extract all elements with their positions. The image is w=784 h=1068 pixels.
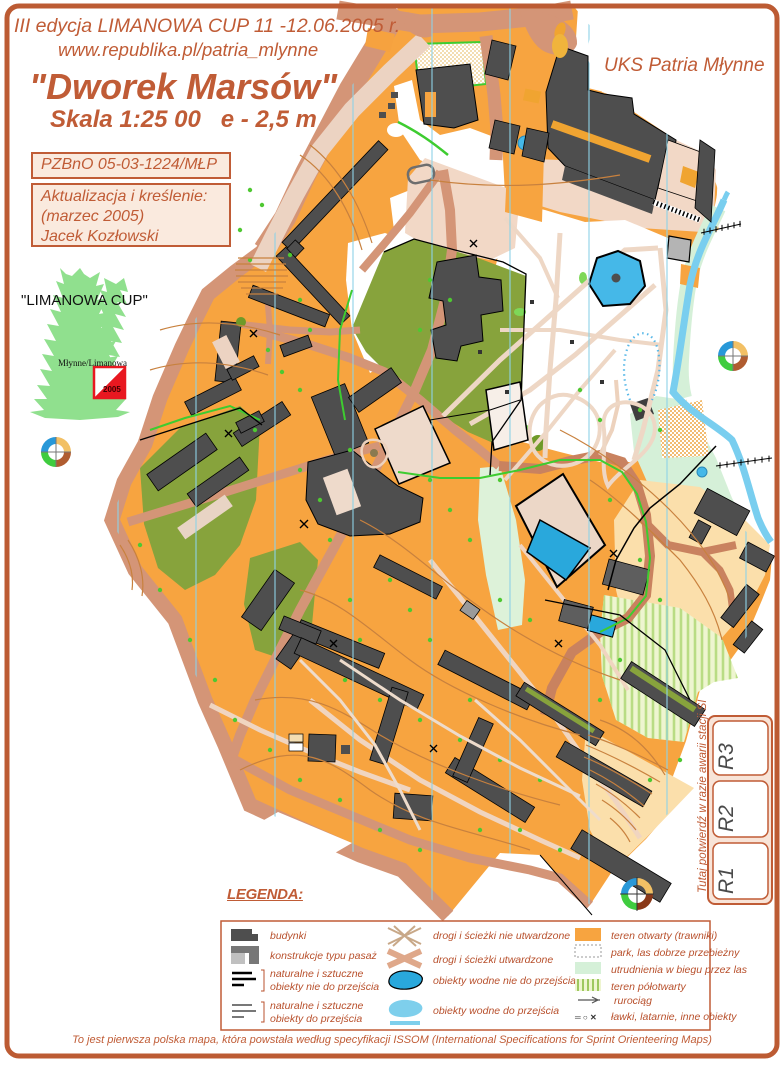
svg-text:R3: R3	[715, 743, 738, 770]
svg-text:Tutaj potwierdź w razie awarii: Tutaj potwierdź w razie awarii stacji SI	[697, 699, 709, 893]
svg-text:obiekty wodne nie do przejścia: obiekty wodne nie do przejścia	[433, 975, 576, 987]
svg-text:R1: R1	[715, 867, 738, 894]
svg-text:teren półotwarty: teren półotwarty	[611, 981, 686, 993]
svg-text:utrudnienia w biegu przez las: utrudnienia w biegu przez las	[611, 964, 748, 976]
svg-text:teren otwarty (trawniki): teren otwarty (trawniki)	[611, 930, 717, 942]
svg-text:drogi i ścieżki utwardzone: drogi i ścieżki utwardzone	[433, 954, 553, 966]
svg-text:drogi i ścieżki nie utwardzone: drogi i ścieżki nie utwardzone	[433, 930, 570, 942]
svg-text:rurociąg: rurociąg	[614, 995, 652, 1007]
svg-text:naturalne i sztuczne: naturalne i sztuczne	[270, 1000, 364, 1012]
svg-text:R2: R2	[715, 805, 738, 832]
svg-text:konstrukcje typu pasaż: konstrukcje typu pasaż	[270, 950, 378, 962]
svg-text:park, las dobrze przebieżny: park, las dobrze przebieżny	[610, 947, 740, 959]
svg-text:═ ○ ✕: ═ ○ ✕	[574, 1013, 597, 1022]
svg-text:naturalne i sztuczne: naturalne i sztuczne	[270, 968, 364, 980]
svg-text:obiekty wodne do przejścia: obiekty wodne do przejścia	[433, 1005, 559, 1017]
svg-text:budynki: budynki	[270, 930, 307, 942]
svg-text:obiekty nie do przejścia: obiekty nie do przejścia	[270, 981, 379, 993]
svg-text:ławki, latarnie, inne obiekty: ławki, latarnie, inne obiekty	[611, 1011, 737, 1023]
svg-text:obiekty do przejścia: obiekty do przejścia	[270, 1013, 362, 1025]
